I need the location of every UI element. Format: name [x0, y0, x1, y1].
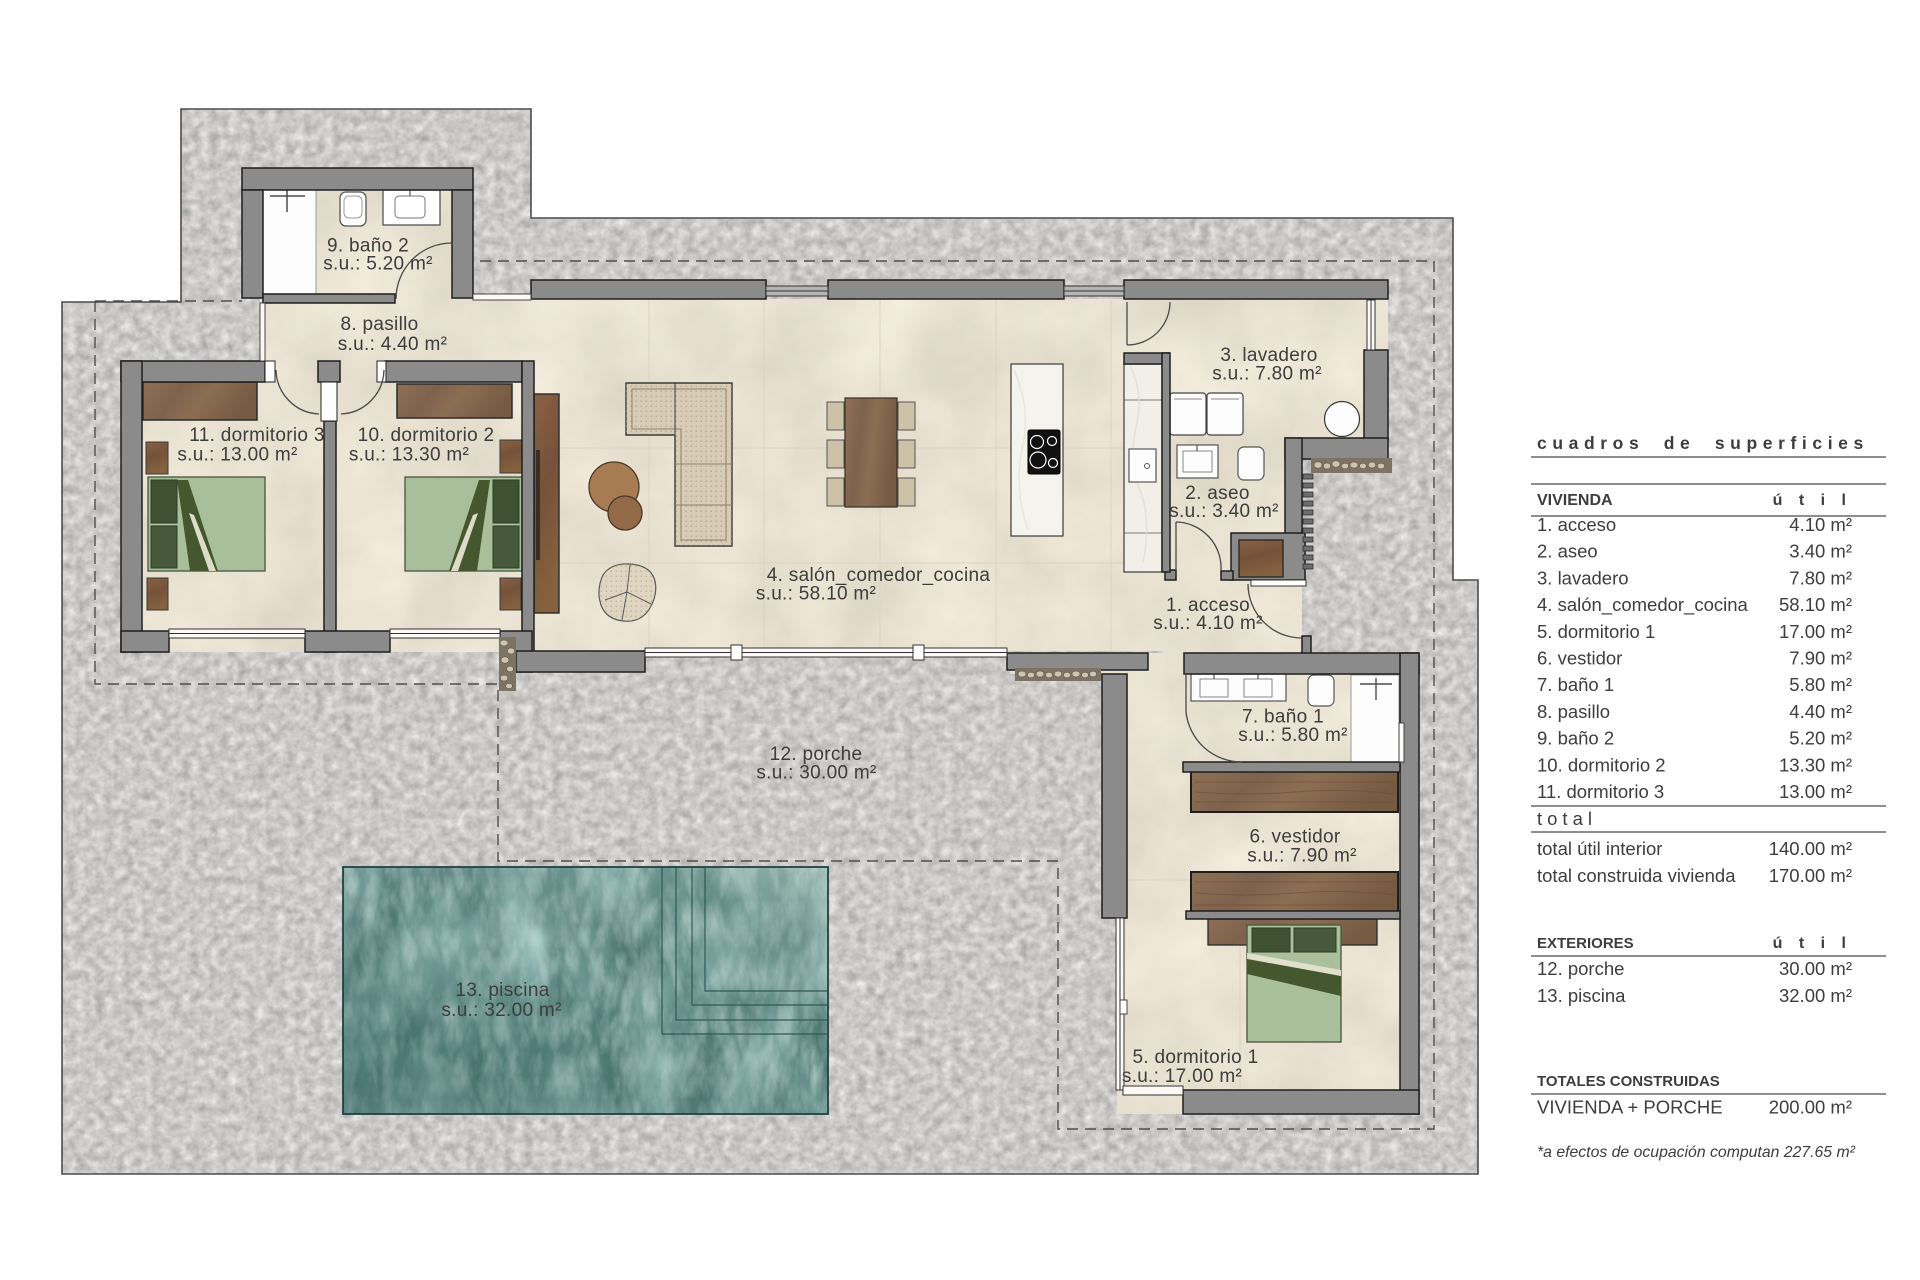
svg-text:8. pasillo: 8. pasillo	[341, 314, 419, 335]
svg-text:s.u.: 13.30 m²: s.u.: 13.30 m²	[349, 445, 469, 466]
svg-text:7.80 m²: 7.80 m²	[1789, 567, 1852, 588]
svg-text:6. vestidor: 6. vestidor	[1537, 648, 1622, 669]
svg-text:17.00 m²: 17.00 m²	[1779, 621, 1852, 642]
svg-text:10. dormitorio 2: 10. dormitorio 2	[1537, 754, 1666, 775]
svg-text:4.40 m²: 4.40 m²	[1789, 701, 1852, 722]
svg-text:2. aseo: 2. aseo	[1537, 541, 1598, 562]
svg-text:6. vestidor: 6. vestidor	[1250, 827, 1341, 848]
svg-text:58.10 m²: 58.10 m²	[1779, 594, 1852, 615]
svg-text:7. baño 1: 7. baño 1	[1537, 674, 1614, 695]
svg-text:5. dormitorio 1: 5. dormitorio 1	[1537, 621, 1655, 642]
svg-text:s.u.: 7.90 m²: s.u.: 7.90 m²	[1247, 846, 1357, 867]
svg-text:*a efectos de ocupación comput: *a efectos de ocupación computan 227.65 …	[1537, 1144, 1856, 1161]
svg-text:ú t i l: ú t i l	[1773, 492, 1852, 509]
svg-text:TOTALES CONSTRUIDAS: TOTALES CONSTRUIDAS	[1537, 1073, 1720, 1090]
svg-text:total útil interior: total útil interior	[1537, 838, 1662, 859]
svg-text:s.u.: 7.80 m²: s.u.: 7.80 m²	[1212, 364, 1322, 385]
svg-text:11. dormitorio 3: 11. dormitorio 3	[1537, 781, 1664, 802]
svg-text:s.u.: 58.10 m²: s.u.: 58.10 m²	[756, 584, 876, 605]
svg-text:s.u.: 4.40 m²: s.u.: 4.40 m²	[338, 334, 448, 355]
svg-text:10. dormitorio 2: 10. dormitorio 2	[358, 425, 495, 446]
svg-text:5.80 m²: 5.80 m²	[1789, 674, 1852, 695]
svg-text:30.00 m²: 30.00 m²	[1779, 958, 1852, 979]
svg-text:1. acceso: 1. acceso	[1537, 514, 1616, 535]
svg-text:3.40 m²: 3.40 m²	[1789, 541, 1852, 562]
svg-text:140.00 m²: 140.00 m²	[1769, 838, 1852, 859]
svg-text:170.00 m²: 170.00 m²	[1769, 865, 1852, 886]
svg-text:13.30 m²: 13.30 m²	[1779, 754, 1852, 775]
svg-text:total: total	[1537, 808, 1597, 829]
svg-text:4. salón_comedor_cocina: 4. salón_comedor_cocina	[1537, 594, 1749, 616]
svg-text:s.u.: 13.00 m²: s.u.: 13.00 m²	[177, 445, 297, 466]
svg-text:s.u.: 5.80 m²: s.u.: 5.80 m²	[1238, 725, 1348, 746]
svg-text:13. piscina: 13. piscina	[455, 980, 549, 1001]
svg-text:13.00 m²: 13.00 m²	[1779, 781, 1852, 802]
svg-text:s.u.: 5.20 m²: s.u.: 5.20 m²	[323, 254, 433, 275]
svg-text:12. porche: 12. porche	[1537, 958, 1624, 979]
svg-text:4.10 m²: 4.10 m²	[1789, 514, 1852, 535]
svg-text:VIVIENDA + PORCHE: VIVIENDA + PORCHE	[1537, 1097, 1723, 1118]
svg-text:5. dormitorio 1: 5. dormitorio 1	[1133, 1047, 1259, 1068]
svg-text:EXTERIORES: EXTERIORES	[1537, 935, 1634, 952]
svg-text:ú t i l: ú t i l	[1773, 935, 1852, 952]
svg-text:cuadros de superficies: cuadros de superficies	[1537, 433, 1869, 453]
svg-text:s.u.: 32.00 m²: s.u.: 32.00 m²	[441, 1000, 561, 1021]
svg-text:s.u.: 4.10 m²: s.u.: 4.10 m²	[1153, 613, 1263, 634]
svg-text:8. pasillo: 8. pasillo	[1537, 701, 1610, 722]
svg-text:5.20 m²: 5.20 m²	[1789, 728, 1852, 749]
svg-text:s.u.: 17.00 m²: s.u.: 17.00 m²	[1122, 1066, 1242, 1087]
svg-text:9. baño 2: 9. baño 2	[1537, 728, 1614, 749]
svg-text:s.u.: 3.40 m²: s.u.: 3.40 m²	[1169, 501, 1279, 522]
svg-text:VIVIENDA: VIVIENDA	[1537, 492, 1613, 509]
svg-text:total construida vivienda: total construida vivienda	[1537, 865, 1736, 886]
svg-text:13. piscina: 13. piscina	[1537, 985, 1626, 1006]
svg-text:s.u.: 30.00 m²: s.u.: 30.00 m²	[756, 763, 876, 784]
svg-text:7.90 m²: 7.90 m²	[1789, 648, 1852, 669]
svg-text:200.00 m²: 200.00 m²	[1769, 1097, 1852, 1118]
svg-text:11. dormitorio 3: 11. dormitorio 3	[189, 425, 324, 446]
svg-text:3. lavadero: 3. lavadero	[1537, 567, 1629, 588]
svg-text:32.00 m²: 32.00 m²	[1779, 985, 1852, 1006]
